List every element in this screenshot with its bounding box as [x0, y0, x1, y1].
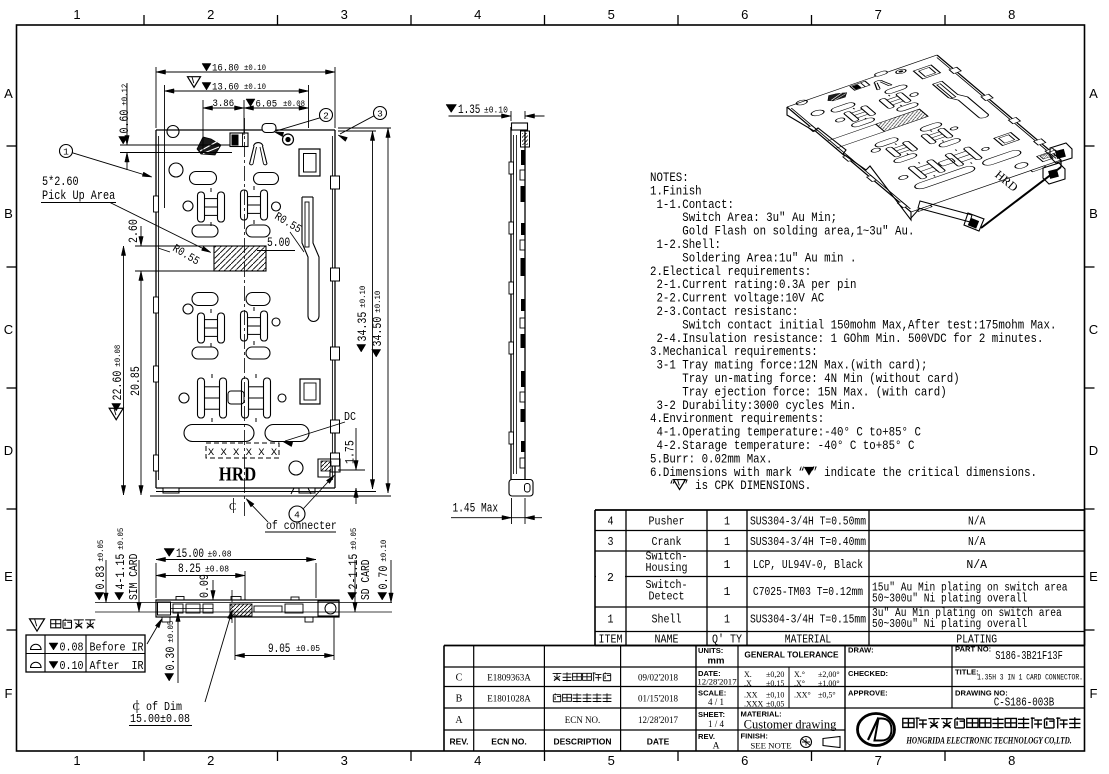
svg-text:N/A: N/A: [966, 559, 987, 572]
svg-text:UNITS:: UNITS:: [698, 646, 723, 655]
svg-text:S186-3B21F13F: S186-3B21F13F: [995, 650, 1063, 663]
svg-text:SEE NOTE: SEE NOTE: [750, 741, 791, 751]
svg-text:FINISH:: FINISH:: [741, 732, 768, 741]
svg-text:X X X X X X: X X X X X X: [208, 447, 278, 459]
svg-text:DRAW:: DRAW:: [848, 646, 874, 655]
svg-text:±0.10: ±0.10: [359, 286, 368, 308]
svg-text:±0.08: ±0.08: [114, 345, 123, 367]
svg-text:SUS304-3/4H T=0.15mm: SUS304-3/4H T=0.15mm: [750, 614, 866, 627]
svg-text:6.05: 6.05: [256, 98, 278, 110]
svg-text:±0.05: ±0.05: [97, 539, 106, 561]
svg-text:B: B: [1089, 206, 1098, 221]
svg-text:2: 2: [323, 111, 329, 122]
svg-text:50~300u" Ni plating overall: 50~300u" Ni plating overall: [872, 593, 1027, 606]
svg-text:±0.08: ±0.08: [283, 100, 305, 109]
svg-text:Crank: Crank: [652, 536, 682, 549]
svg-text:±1,00°: ±1,00°: [818, 679, 840, 688]
svg-text:B: B: [456, 694, 463, 705]
svg-text:±0.08: ±0.08: [205, 565, 229, 575]
svg-text:±0,5°: ±0,5°: [818, 691, 836, 700]
svg-text:.XXX: .XXX: [744, 700, 764, 709]
svg-text:34.35: 34.35: [355, 312, 370, 342]
svg-text:.X°: .X°: [794, 679, 805, 688]
svg-text:SHEET:: SHEET:: [698, 710, 725, 719]
svg-text:6: 6: [741, 7, 748, 22]
svg-text:X.: X.: [744, 670, 752, 679]
svg-text:15.00±0.08: 15.00±0.08: [130, 712, 190, 726]
svg-text:SUS304-3/4H T=0.40mm: SUS304-3/4H T=0.40mm: [750, 536, 866, 549]
svg-text:GENERAL TOLERANCE: GENERAL TOLERANCE: [744, 650, 839, 660]
svg-text:2: 2: [207, 753, 214, 768]
svg-text:0.83: 0.83: [93, 566, 108, 590]
svg-text:9.05: 9.05: [268, 641, 290, 656]
svg-text:±0,20: ±0,20: [766, 670, 784, 679]
svg-text:HRD: HRD: [219, 464, 257, 486]
svg-text:16.80: 16.80: [212, 63, 239, 75]
svg-text:A: A: [4, 86, 13, 101]
svg-text:±0.08: ±0.08: [208, 550, 232, 560]
svg-text:N/A: N/A: [968, 516, 985, 529]
svg-text:A: A: [713, 742, 720, 752]
svg-text:1: 1: [608, 614, 614, 627]
svg-text:SD CARD: SD CARD: [360, 559, 373, 600]
svg-text:2: 2: [607, 572, 614, 585]
svg-text:.XX: .XX: [744, 691, 758, 700]
svg-text:3: 3: [608, 536, 614, 549]
svg-text:1.35H 3 IN 1 CARD CONNECTOR.: 1.35H 3 IN 1 CARD CONNECTOR.: [977, 674, 1083, 683]
svg-text:8: 8: [1008, 7, 1015, 22]
svg-text:1.45 Max: 1.45 Max: [453, 502, 499, 516]
svg-text:APPROVE:: APPROVE:: [848, 689, 888, 698]
svg-text:1: 1: [73, 7, 80, 22]
svg-text:C: C: [4, 322, 13, 337]
svg-text:CHECKED:: CHECKED:: [848, 669, 888, 678]
svg-text:5*2.60: 5*2.60: [42, 175, 79, 189]
svg-text:E1801028A: E1801028A: [487, 694, 531, 704]
svg-text:C: C: [456, 673, 463, 684]
svg-text:C7025-TM03 T=0.12mm: C7025-TM03 T=0.12mm: [753, 586, 863, 599]
svg-text:A: A: [1089, 86, 1098, 101]
svg-text:7: 7: [875, 7, 882, 22]
svg-text:±0.10: ±0.10: [380, 539, 389, 561]
svg-text:4 / 1: 4 / 1: [708, 697, 724, 707]
svg-text:1.35: 1.35: [458, 102, 480, 117]
svg-text:13.60: 13.60: [212, 81, 239, 93]
svg-text:2-1.15: 2-1.15: [346, 554, 361, 590]
svg-text:4: 4: [608, 516, 614, 529]
svg-text:SIM CARD: SIM CARD: [128, 554, 141, 600]
svg-text:0.09: 0.09: [197, 574, 212, 598]
svg-text:ECN NO.: ECN NO.: [491, 737, 526, 747]
svg-text:PART NO:: PART NO:: [955, 645, 991, 654]
svg-text:15.00: 15.00: [176, 546, 204, 561]
svg-text:N/A: N/A: [968, 536, 985, 549]
svg-text:1: 1: [724, 559, 731, 572]
svg-text:Before IR: Before IR: [90, 642, 144, 655]
svg-text:E1809363A: E1809363A: [487, 673, 531, 683]
svg-text:.XX°: .XX°: [794, 691, 811, 700]
svg-text:Pick Up Area: Pick Up Area: [42, 189, 116, 203]
svg-text:1: 1: [724, 516, 730, 529]
svg-text:01/15'2018: 01/15'2018: [638, 694, 679, 704]
svg-text:0.10: 0.10: [60, 659, 84, 673]
svg-text:1: 1: [724, 536, 730, 549]
svg-text:E: E: [4, 569, 13, 584]
svg-text:LCP, UL94V-0, Black: LCP, UL94V-0, Black: [753, 559, 863, 572]
svg-text:1: 1: [63, 147, 69, 158]
svg-text:8: 8: [1008, 753, 1015, 768]
svg-text:DATE: DATE: [647, 737, 670, 747]
svg-text:50~300u" Ni plating overall: 50~300u" Ni plating overall: [872, 618, 1027, 631]
svg-text:0.08: 0.08: [60, 641, 84, 655]
svg-text:6: 6: [741, 753, 748, 768]
svg-text:3.86: 3.86: [213, 98, 235, 110]
svg-text:±0.05: ±0.05: [296, 644, 320, 654]
svg-text:5: 5: [608, 7, 615, 22]
svg-text:B: B: [4, 206, 13, 221]
svg-text:2: 2: [207, 7, 214, 22]
svg-text:C: C: [1089, 322, 1098, 337]
svg-text:SUS304-3/4H T=0.50mm: SUS304-3/4H T=0.50mm: [750, 516, 866, 529]
svg-text:ITEM: ITEM: [599, 633, 623, 646]
svg-text:1: 1: [724, 614, 730, 627]
svg-text:±0.05: ±0.05: [350, 528, 359, 550]
svg-text:±0,15: ±0,15: [766, 679, 784, 688]
svg-text:0.60: 0.60: [117, 110, 132, 134]
svg-text:of connecter: of connecter: [266, 519, 337, 533]
svg-text:22.60: 22.60: [110, 371, 125, 401]
svg-text:12/28'2017: 12/28'2017: [638, 715, 679, 725]
svg-text:1 / 4: 1 / 4: [708, 719, 725, 729]
svg-text:TITLE:: TITLE:: [955, 668, 979, 677]
svg-text:C: C: [229, 501, 236, 513]
svg-text:Housing: Housing: [646, 562, 688, 575]
svg-text:±0.10: ±0.10: [244, 83, 266, 92]
svg-text:DESCRIPTION: DESCRIPTION: [553, 737, 611, 747]
svg-text:DC: DC: [344, 411, 356, 424]
svg-text:4-1.15: 4-1.15: [113, 554, 128, 590]
svg-text:A: A: [455, 715, 463, 726]
svg-text:4: 4: [474, 7, 481, 22]
svg-text:2.60: 2.60: [126, 219, 141, 243]
svg-text:±0.10: ±0.10: [244, 64, 266, 73]
svg-text:0.70: 0.70: [376, 566, 391, 590]
svg-text:X.°: X.°: [794, 670, 805, 679]
svg-text:±0.10: ±0.10: [484, 106, 508, 116]
svg-text:NAME: NAME: [655, 633, 679, 646]
svg-text:MATERIAL: MATERIAL: [785, 633, 831, 646]
svg-text:±0.05: ±0.05: [117, 528, 126, 550]
svg-text:±0.05: ±0.05: [167, 620, 176, 642]
svg-text:4: 4: [474, 753, 481, 768]
svg-text:D: D: [1089, 443, 1098, 458]
svg-text:D: D: [4, 443, 13, 458]
svg-text:1.75: 1.75: [343, 440, 358, 464]
svg-text:F: F: [1090, 686, 1098, 701]
svg-text:34.50: 34.50: [370, 317, 385, 347]
svg-text:0.30: 0.30: [163, 647, 178, 671]
svg-text:Detect: Detect: [649, 591, 685, 604]
svg-text:±2,00°: ±2,00°: [818, 670, 840, 679]
svg-text:REV.: REV.: [449, 737, 468, 747]
svg-text:3: 3: [341, 753, 348, 768]
svg-text:Customer drawing: Customer drawing: [744, 718, 837, 732]
svg-text:REV.: REV.: [698, 732, 715, 741]
svg-text:After IR: After IR: [90, 660, 144, 673]
svg-text:20.85: 20.85: [128, 366, 143, 396]
svg-text:F: F: [5, 686, 13, 701]
svg-text:±0,10: ±0,10: [766, 691, 784, 700]
svg-text:HONGRIDA ELECTRONIC TECHNOLOGY: HONGRIDA ELECTRONIC TECHNOLOGY CO,LTD.: [906, 737, 1072, 747]
svg-text:09/02'2018: 09/02'2018: [638, 673, 679, 683]
svg-text:ECN NO.: ECN NO.: [565, 715, 601, 725]
svg-text:mm: mm: [708, 656, 725, 667]
svg-text:3: 3: [341, 7, 348, 22]
svg-text:7: 7: [875, 753, 882, 768]
svg-text:5.00: 5.00: [267, 236, 290, 250]
svg-text:Shell: Shell: [652, 614, 682, 627]
svg-text:8.25: 8.25: [178, 562, 201, 576]
svg-text:5: 5: [608, 753, 615, 768]
svg-text:1: 1: [73, 753, 80, 768]
svg-text:±0.12: ±0.12: [121, 83, 130, 105]
svg-text:12/28'2017: 12/28'2017: [697, 677, 737, 687]
svg-text:C-S186-003B: C-S186-003B: [994, 697, 1055, 710]
svg-text:Q' TY: Q' TY: [712, 633, 742, 646]
svg-text:E: E: [1089, 569, 1098, 584]
svg-text:±0.10: ±0.10: [374, 291, 383, 313]
svg-text:1: 1: [724, 586, 731, 599]
svg-text:±0,05: ±0,05: [766, 700, 784, 709]
svg-text:.X: .X: [744, 679, 752, 688]
svg-text:3: 3: [377, 109, 383, 120]
svg-text:Pusher: Pusher: [649, 516, 685, 529]
